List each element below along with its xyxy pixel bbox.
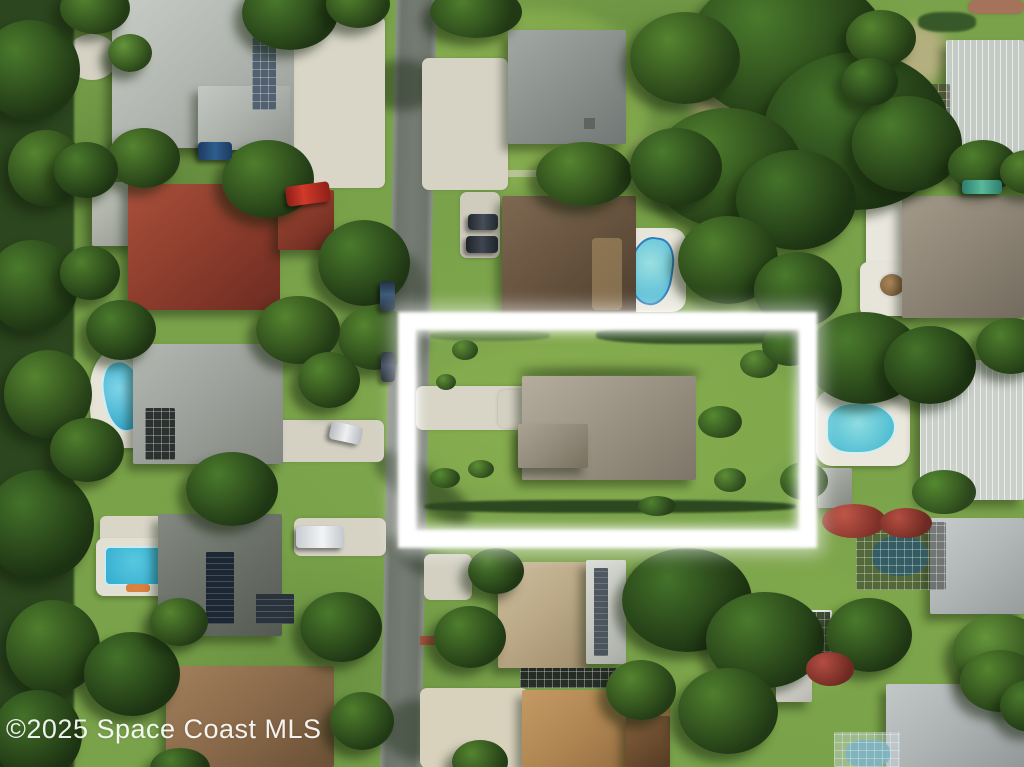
car-blue-a [198,142,232,160]
tree-road-1 [434,606,506,668]
roof-patch-g [592,238,622,310]
driveway-c [266,420,384,462]
car-street-1 [380,281,395,311]
driveway-f [422,58,508,190]
driveway-h [424,554,472,600]
tree-b-4 [86,300,156,360]
car-street-2 [381,352,395,382]
lanai-c [145,408,175,460]
tree-a-2 [54,142,118,198]
red-bush-br [806,652,854,686]
palm-a [108,34,152,72]
house-k [902,196,1024,318]
tree-b-1 [318,220,410,306]
paver-j [968,0,1024,14]
tree-e-1 [330,692,394,750]
tree-a-3 [222,140,314,218]
pool-cage-br [834,732,900,767]
roof-boxes-d [256,594,294,624]
red-bush-l2 [880,508,932,538]
canopy-5 [630,12,740,104]
chimney-f [584,118,595,129]
tree-h-1 [468,548,524,594]
canopy-s4 [606,660,676,720]
property-highlight-frame [398,312,817,548]
tree-l-2 [884,326,976,404]
canopy-4 [852,96,962,192]
tree-a-1 [108,128,180,188]
tree-fg-2 [630,128,722,206]
lanai-h [520,668,620,688]
tree-d-2 [84,632,180,716]
car-g-2 [466,236,498,253]
tree-b-3 [60,246,120,300]
tree-d-3 [150,598,208,646]
solar-array-d [206,552,234,624]
tree-c-2 [186,452,278,526]
tree-c-4 [298,352,360,408]
truck-white-d [296,526,344,548]
aerial-photo: ©2025 Space Coast MLS [0,0,1024,767]
skylights-h [594,568,608,656]
car-g-1 [468,214,498,230]
tree-fg-1 [536,142,632,206]
tree-d-1 [300,592,382,662]
loungers-d [126,584,150,592]
tree-j-1 [846,10,916,66]
watermark: ©2025 Space Coast MLS [6,716,322,743]
red-bush-l1 [822,504,886,538]
tree-c-3 [50,418,124,482]
bush-l3 [912,470,976,514]
canopy-s3 [678,668,778,754]
tree-j-2 [842,58,898,106]
house-f [508,30,626,144]
cars-k [962,180,1002,194]
hedge-row-j [918,12,976,32]
house-i-wing [626,716,670,767]
